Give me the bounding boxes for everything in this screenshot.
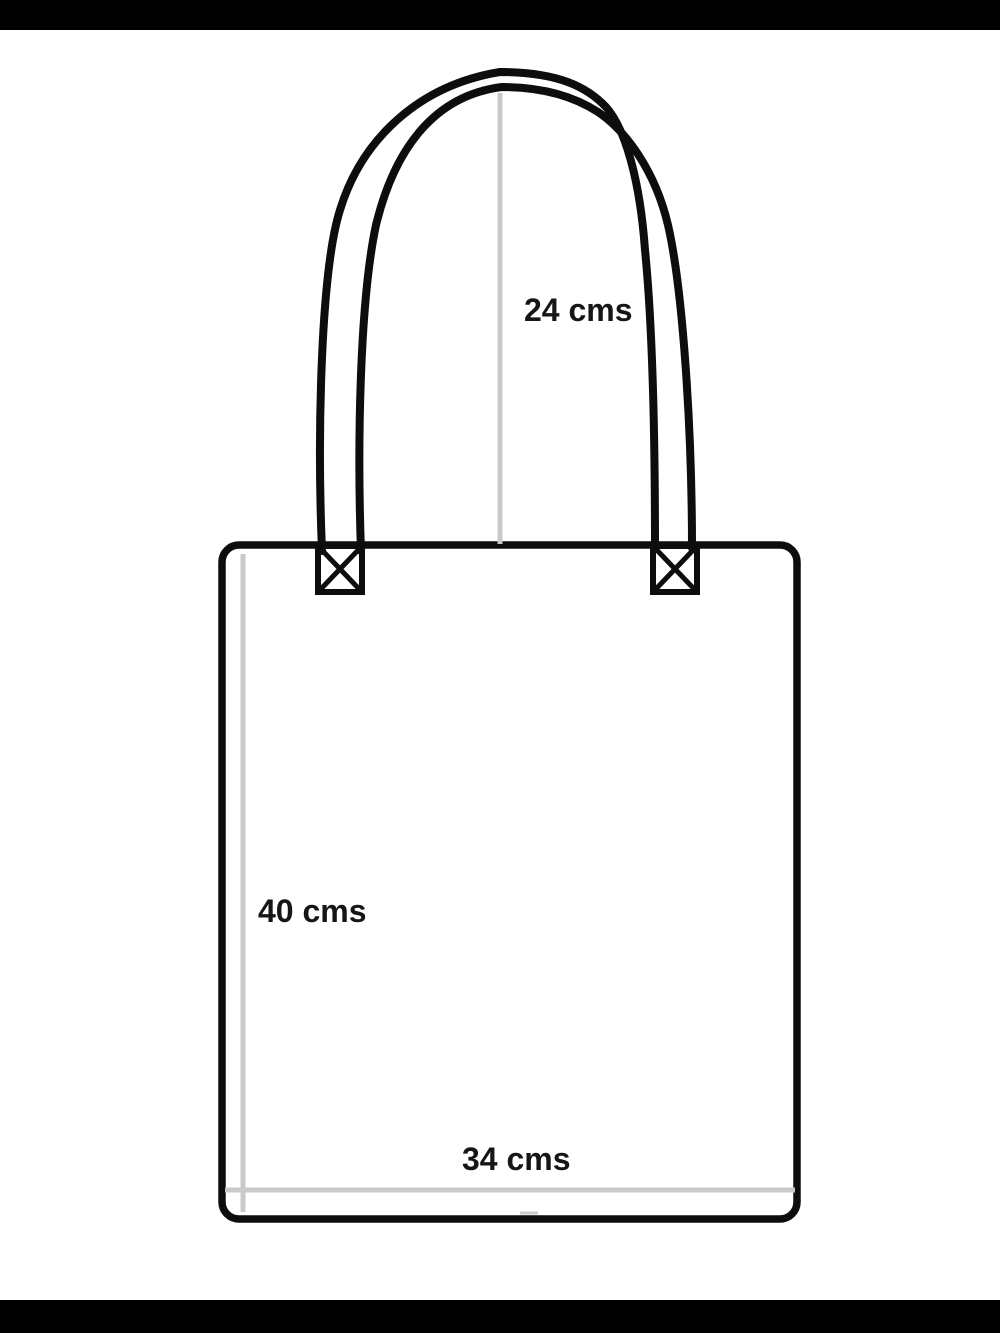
bag-height-label: 40 cms — [258, 893, 367, 929]
bag-body-outline — [222, 545, 797, 1219]
tote-bag-diagram-page: 24 cms 40 cms 34 cms — [0, 0, 1000, 1333]
handle-height-label: 24 cms — [524, 292, 633, 328]
bag-width-label: 34 cms — [462, 1141, 571, 1177]
bag-outline-drawing: 24 cms 40 cms 34 cms — [0, 0, 1000, 1333]
